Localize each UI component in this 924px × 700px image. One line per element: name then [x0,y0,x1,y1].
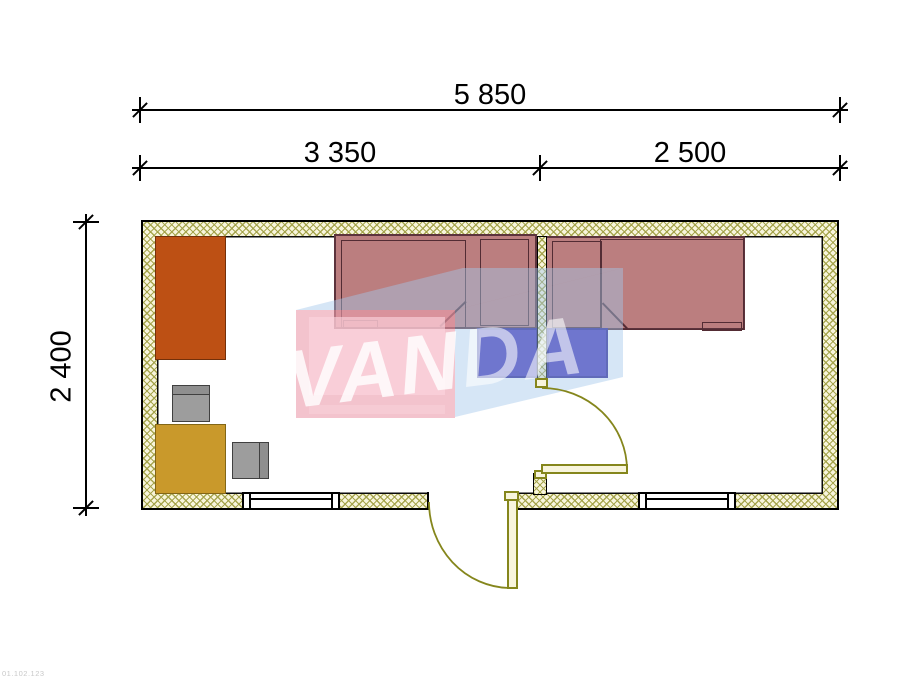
dimension-line-total-width [132,109,848,111]
entrance-door-swing-arc [429,502,509,588]
window-frame-cap [645,494,647,508]
dimension-label-left-section: 3 350 [240,137,440,170]
window-left-room [242,492,340,510]
bed-foot-marker [702,322,742,331]
entrance-door-leaf [507,499,518,589]
single-bed-left-room [334,234,537,329]
entrance-door-opening [429,490,511,512]
chair [172,385,210,422]
table [155,424,226,494]
dimension-line-depth [85,214,87,516]
dimension-label-total-width: 5 850 [390,79,590,112]
chair [232,442,269,479]
chair-backrest [259,443,268,478]
pillow [552,241,602,328]
dimension-label-depth: 2 400 [46,307,79,427]
door-jamb-cap [427,492,429,510]
window-frame-cap [331,494,333,508]
blanket [600,239,744,330]
window-right-room [638,492,736,510]
window-frame-cap [727,494,729,508]
bed-foot-marker [343,320,378,329]
corner-code: 01.102.123 [2,669,45,678]
dimension-label-right-section: 2 500 [590,137,790,170]
floor-plan-drawing: 5 850 3 350 2 500 2 400 [0,0,924,700]
single-bed-right-room [545,236,745,330]
pillow [480,239,529,326]
dimension-line-sections [132,167,848,169]
nightstand-right-room [547,328,608,378]
blanket [341,240,466,328]
nightstand-left-room [477,328,538,378]
interior-door-leaf [541,464,628,474]
window-frame-cap [249,494,251,508]
window-glazing-line [249,498,333,500]
partition-wall [537,236,547,386]
wardrobe [155,236,226,360]
chair-backrest [173,386,209,395]
window-glazing-line [645,498,729,500]
partition-end-cap [535,378,548,388]
